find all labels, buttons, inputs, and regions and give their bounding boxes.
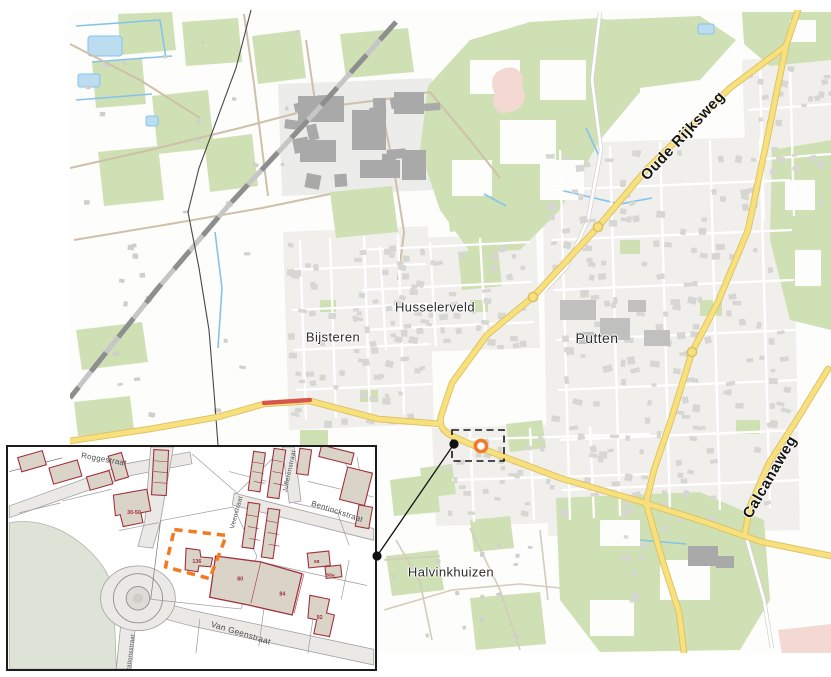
roadworks-segment bbox=[264, 400, 310, 403]
inset-parcel-number: 30-50 bbox=[127, 510, 141, 516]
map-figure: RoggestraatBentinckstraatVan GeenstraatJ… bbox=[0, 0, 831, 677]
inset-parcel-number: 58 bbox=[314, 559, 320, 565]
inset-parcel-number: 136 bbox=[192, 559, 201, 565]
inset-parcel-number: 84 bbox=[279, 591, 285, 597]
inset-canvas: RoggestraatBentinckstraatVan GeenstraatJ… bbox=[8, 447, 375, 669]
inset-roundabout bbox=[113, 574, 162, 623]
inset-parcel-number: 58a bbox=[326, 573, 334, 579]
inset-map: RoggestraatBentinckstraatVan GeenstraatJ… bbox=[6, 445, 377, 671]
inset-parcel-number: 92 bbox=[317, 615, 323, 621]
inset-parcel-number: 80 bbox=[237, 577, 243, 583]
